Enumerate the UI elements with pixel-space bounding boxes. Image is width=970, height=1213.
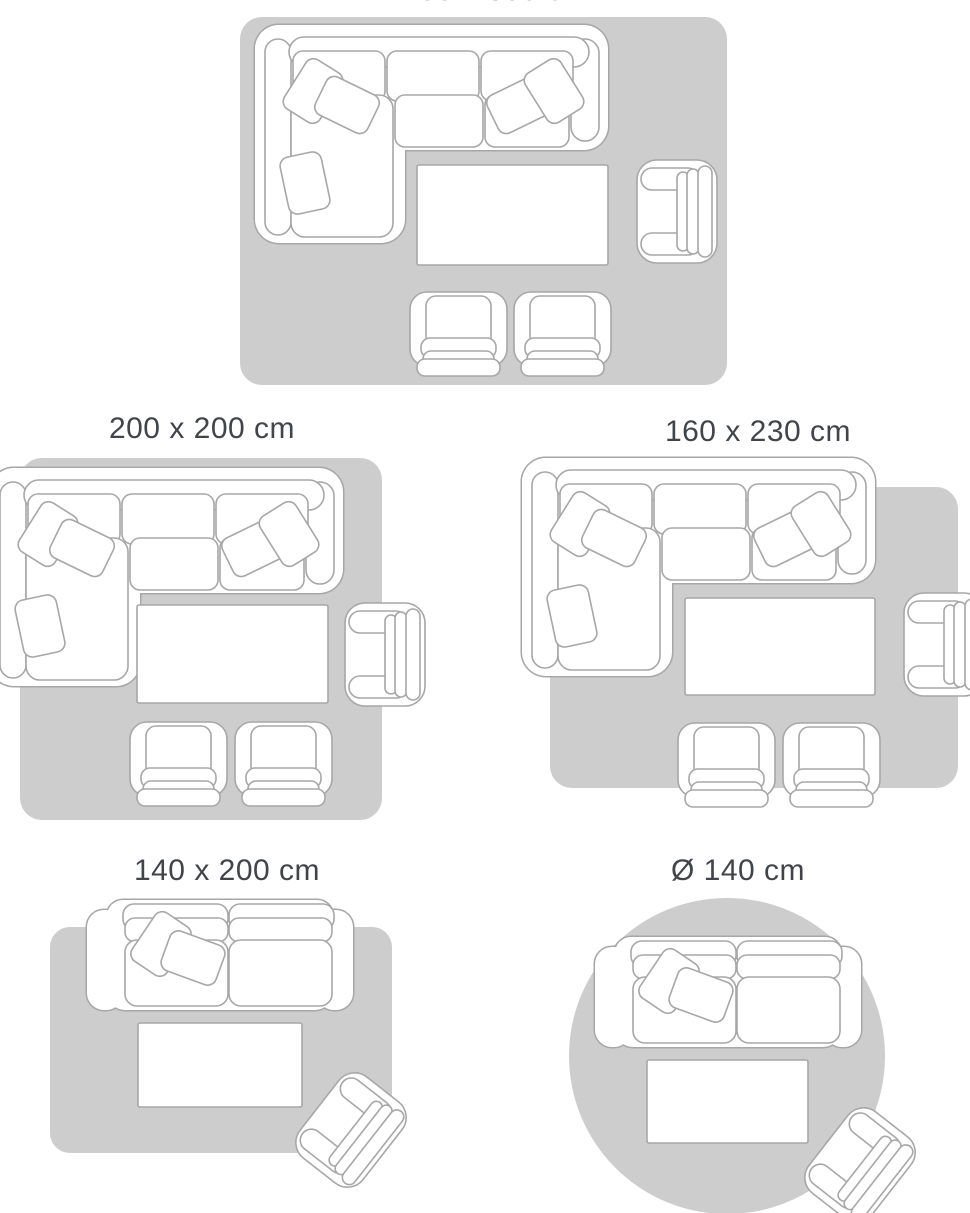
front-armchair [410, 292, 507, 376]
front-armchair [514, 292, 611, 376]
scene-200x200 [0, 458, 425, 820]
two-seat-sofa [595, 937, 861, 1047]
coffee-table [138, 1023, 302, 1107]
rug-size-guide: 200 x 300 cm 200 x 200 cm 160 x 230 cm 1… [0, 0, 970, 1213]
front-armchair [130, 722, 227, 806]
front-armchair [678, 723, 775, 807]
side-armchair [904, 593, 970, 696]
coffee-table [137, 605, 328, 703]
scene-140x200 [50, 900, 414, 1195]
scene-160x230 [522, 458, 970, 807]
layout-illustrations [0, 0, 970, 1213]
coffee-table [685, 598, 875, 695]
front-armchair [783, 723, 880, 807]
side-armchair [345, 603, 425, 706]
side-armchair [637, 160, 717, 263]
front-armchair [235, 722, 332, 806]
two-seat-sofa [87, 900, 353, 1010]
coffee-table [647, 1060, 808, 1143]
scene-round-140 [569, 898, 923, 1213]
coffee-table [417, 165, 608, 265]
scene-200x300 [240, 17, 727, 385]
